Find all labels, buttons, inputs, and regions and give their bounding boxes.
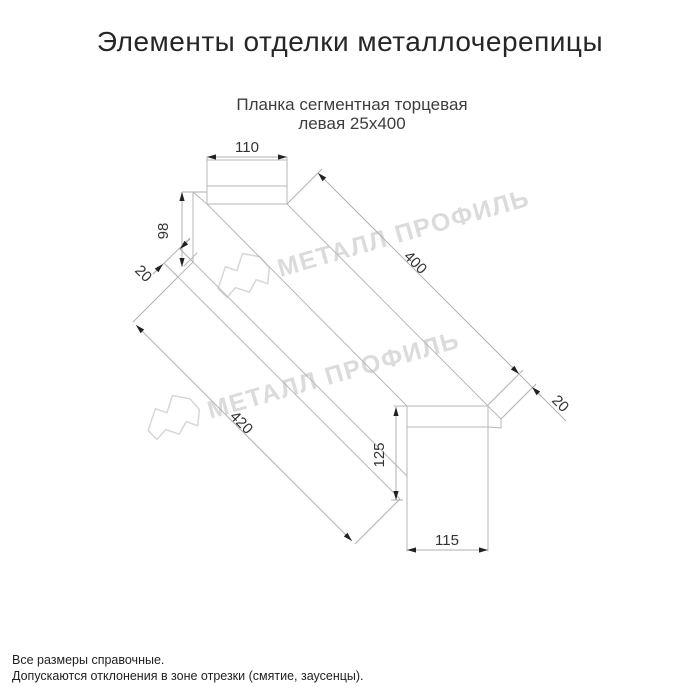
dim-right-height-label: 125 [371, 442, 388, 467]
dim-top-width: 110 [207, 139, 287, 157]
footer-note-line2: Допускаются отклонения в зоне отрезки (с… [12, 669, 364, 685]
footer-note-line1: Все размеры справочные. [12, 653, 364, 669]
dim-left-flange: 20 [131, 238, 190, 286]
metall-profil-logo-watermark-icon [211, 247, 275, 300]
dim-right-flange-label: 20 [548, 392, 572, 416]
dim-left-height: 98 [155, 192, 182, 267]
dim-length-top-label: 400 [400, 248, 430, 278]
watermark-upper: МЕТАЛЛ ПРОФИЛЬ [211, 173, 533, 300]
dim-right-flange: 20 [519, 374, 572, 421]
watermark-text: МЕТАЛЛ ПРОФИЛЬ [204, 326, 463, 425]
dim-left-height-label: 98 [155, 223, 172, 240]
dim-right-width-label: 115 [435, 532, 459, 549]
dim-top-width-label: 110 [235, 139, 259, 156]
technical-drawing: МЕТАЛЛ ПРОФИЛЬ МЕТАЛЛ ПРОФИЛЬ [0, 0, 700, 700]
dim-right-width: 115 [407, 532, 488, 550]
dim-length-bottom: 420 [136, 325, 352, 541]
metall-profil-logo-watermark-icon [141, 389, 205, 442]
dim-left-flange-label: 20 [131, 262, 155, 286]
watermark-text: МЕТАЛЛ ПРОФИЛЬ [274, 184, 533, 283]
footer-notes: Все размеры справочные. Допускаются откл… [12, 653, 364, 684]
dim-right-height: 125 [371, 407, 396, 500]
